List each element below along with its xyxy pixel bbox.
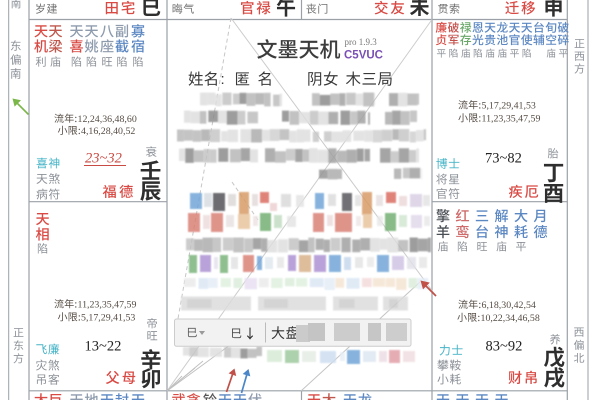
- svg-text:5,17,29,41,53: 5,17,29,41,53: [482, 101, 536, 112]
- svg-text::: :: [221, 71, 225, 88]
- svg-text:11,23,35,47,59: 11,23,35,47,59: [78, 300, 137, 311]
- svg-text:6,18,30,42,54: 6,18,30,42,54: [482, 300, 536, 311]
- svg-text:11,23,35,47,59: 11,23,35,47,59: [482, 114, 541, 125]
- svg-text:5,17,29,41,53: 5,17,29,41,53: [81, 313, 135, 324]
- svg-text:pro 1.9.3: pro 1.9.3: [345, 37, 378, 47]
- svg-text:73~82: 73~82: [485, 151, 522, 167]
- svg-text:10,22,34,46,58: 10,22,34,46,58: [481, 313, 540, 324]
- svg-text:83~92: 83~92: [486, 339, 523, 355]
- svg-text:12,24,36,48,60: 12,24,36,48,60: [78, 114, 137, 125]
- svg-text:13~22: 13~22: [85, 339, 122, 355]
- svg-text:4,16,28,40,52: 4,16,28,40,52: [81, 126, 135, 137]
- svg-text:C5VUC: C5VUC: [344, 50, 383, 62]
- svg-text:23~32: 23~32: [85, 151, 122, 167]
